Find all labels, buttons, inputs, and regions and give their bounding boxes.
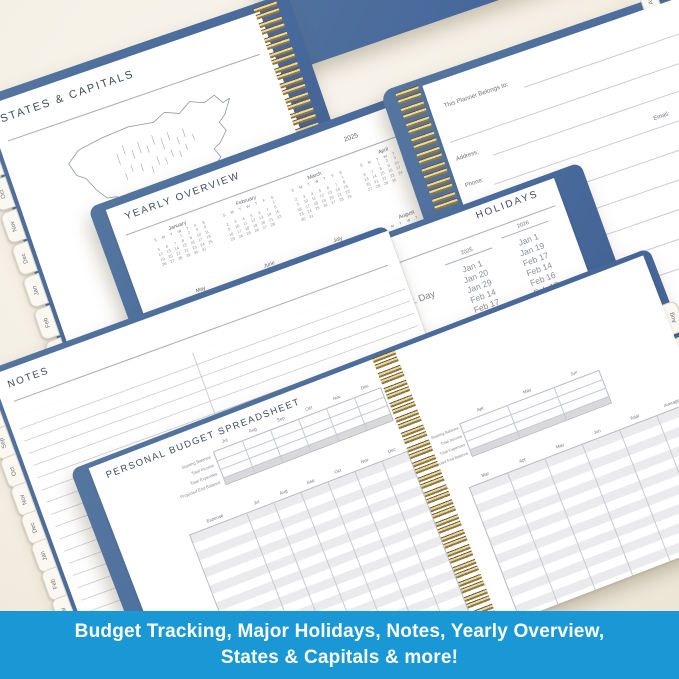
notes-title: NOTES xyxy=(6,365,51,390)
ruled-line xyxy=(493,44,679,156)
ruled-line xyxy=(450,19,679,142)
caption-line-1: Budget Tracking, Major Holidays, Notes, … xyxy=(0,619,679,645)
mini-calendar-february: FebruarySMTWTFS1234567891011121314151617… xyxy=(215,187,288,244)
caption-line-2: States & Capitals & more! xyxy=(0,645,679,671)
mini-calendar-january: JanuarySMTWTFS12345678910111213141516171… xyxy=(146,212,219,269)
mini-calendar-march: MarchSMTWTFS1234567891011121314151617181… xyxy=(283,162,358,224)
states-capitals-title: STATES & CAPITALS xyxy=(0,68,136,125)
year-label: 2025 xyxy=(342,125,375,152)
planner-product-photo: SepOctNovDecJanFebMar STATES & CAPITALS … xyxy=(0,0,679,679)
caption-banner: Budget Tracking, Major Holidays, Notes, … xyxy=(0,611,679,679)
